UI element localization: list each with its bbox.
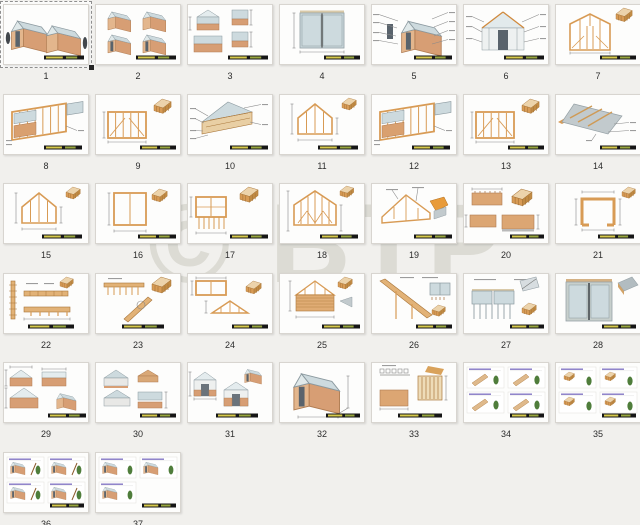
page-card xyxy=(279,94,365,155)
thumbnail-selection-frame xyxy=(368,270,460,337)
page-drawing xyxy=(556,185,640,242)
page-card xyxy=(371,183,457,244)
thumbnail-selection-frame xyxy=(92,91,184,158)
thumbnail-grid: 1 2 3 4 5 xyxy=(0,0,640,525)
thumbnail-selection-frame xyxy=(184,1,276,68)
page-drawing xyxy=(4,454,88,511)
page-number-label: 35 xyxy=(593,430,603,439)
page-number-label: 10 xyxy=(225,162,235,171)
page-card xyxy=(95,183,181,244)
page-number-label: 21 xyxy=(593,251,603,260)
thumbnail-selection-frame xyxy=(0,1,92,68)
page-card xyxy=(371,362,457,423)
page-number-label: 22 xyxy=(41,341,51,350)
page-drawing xyxy=(372,364,456,421)
page-number-label: 33 xyxy=(409,430,419,439)
page-drawing xyxy=(464,364,548,421)
page-card xyxy=(3,273,89,334)
thumbnail-selection-frame xyxy=(552,180,640,247)
thumbnail-selection-frame xyxy=(460,1,552,68)
page-card xyxy=(3,183,89,244)
thumbnail-selection-frame xyxy=(0,180,92,247)
page-thumbnail[interactable]: 25 xyxy=(276,269,368,359)
page-card xyxy=(555,362,640,423)
page-drawing xyxy=(96,185,180,242)
page-number-label: 11 xyxy=(317,162,326,171)
page-card xyxy=(555,273,640,334)
page-card xyxy=(371,273,457,334)
page-card xyxy=(95,273,181,334)
page-number-label: 16 xyxy=(133,251,143,260)
thumbnail-selection-frame xyxy=(184,270,276,337)
page-card xyxy=(279,362,365,423)
page-thumbnail[interactable]: 7 xyxy=(552,0,640,90)
page-drawing xyxy=(188,6,272,63)
page-number-label: 32 xyxy=(317,430,327,439)
page-number-label: 7 xyxy=(595,72,600,81)
page-card xyxy=(95,4,181,65)
page-thumbnail[interactable]: 29 xyxy=(0,358,92,448)
page-drawing xyxy=(464,6,548,63)
page-drawing xyxy=(280,275,364,332)
page-card xyxy=(3,4,89,65)
page-thumbnail[interactable]: 4 xyxy=(276,0,368,90)
page-number-label: 5 xyxy=(411,72,416,81)
page-number-label: 34 xyxy=(501,430,511,439)
page-number-label: 27 xyxy=(501,341,511,350)
thumbnail-selection-frame xyxy=(0,91,92,158)
page-card xyxy=(279,183,365,244)
thumbnail-selection-frame xyxy=(276,359,368,426)
page-number-label: 25 xyxy=(317,341,327,350)
page-number-label: 2 xyxy=(135,72,140,81)
page-drawing xyxy=(188,185,272,242)
thumbnail-selection-frame xyxy=(92,1,184,68)
page-number-label: 9 xyxy=(135,162,140,171)
page-card xyxy=(555,4,640,65)
page-drawing xyxy=(464,96,548,153)
page-thumbnail[interactable]: 32 xyxy=(276,358,368,448)
page-thumbnail[interactable]: 34 xyxy=(460,358,552,448)
thumbnail-selection-frame xyxy=(460,91,552,158)
page-card xyxy=(555,183,640,244)
page-drawing xyxy=(96,96,180,153)
thumbnail-selection-frame xyxy=(368,180,460,247)
page-drawing xyxy=(188,275,272,332)
page-card xyxy=(463,183,549,244)
page-thumbnail[interactable]: 19 xyxy=(368,179,460,269)
page-drawing xyxy=(280,6,364,63)
thumbnail-selection-frame xyxy=(92,449,184,516)
page-card xyxy=(3,452,89,513)
page-card xyxy=(279,4,365,65)
page-thumbnail[interactable]: 6 xyxy=(460,0,552,90)
page-drawing xyxy=(280,96,364,153)
page-thumbnail[interactable]: 31 xyxy=(184,358,276,448)
thumbnail-browser: © BTP 1 2 3 4 xyxy=(0,0,640,525)
page-drawing xyxy=(4,185,88,242)
page-drawing xyxy=(464,275,548,332)
thumbnail-selection-frame xyxy=(552,270,640,337)
page-card xyxy=(463,273,549,334)
page-card xyxy=(3,94,89,155)
page-number-label: 31 xyxy=(225,430,235,439)
thumbnail-selection-frame xyxy=(184,91,276,158)
page-number-label: 4 xyxy=(319,72,324,81)
page-number-label: 28 xyxy=(593,341,603,350)
page-drawing xyxy=(556,275,640,332)
page-thumbnail[interactable]: 16 xyxy=(92,179,184,269)
thumbnail-selection-frame xyxy=(184,180,276,247)
page-thumbnail[interactable]: 13 xyxy=(460,90,552,180)
page-card xyxy=(187,273,273,334)
page-thumbnail[interactable]: 26 xyxy=(368,269,460,359)
page-card xyxy=(371,94,457,155)
page-card xyxy=(95,94,181,155)
page-number-label: 29 xyxy=(41,430,51,439)
page-number-label: 1 xyxy=(43,72,48,81)
thumbnail-selection-frame xyxy=(276,180,368,247)
page-number-label: 12 xyxy=(409,162,419,171)
thumbnail-selection-frame xyxy=(0,270,92,337)
thumbnail-selection-frame xyxy=(368,1,460,68)
thumbnail-selection-frame xyxy=(460,270,552,337)
page-thumbnail[interactable]: 2 xyxy=(92,0,184,90)
page-number-label: 8 xyxy=(43,162,48,171)
page-thumbnail[interactable]: 9 xyxy=(92,90,184,180)
page-thumbnail[interactable]: 27 xyxy=(460,269,552,359)
page-drawing xyxy=(280,364,364,421)
page-number-label: 26 xyxy=(409,341,419,350)
thumbnail-selection-frame xyxy=(368,359,460,426)
page-thumbnail[interactable]: 8 xyxy=(0,90,92,180)
page-card xyxy=(187,94,273,155)
page-card xyxy=(463,362,549,423)
page-number-label: 13 xyxy=(501,162,511,171)
thumbnail-selection-frame xyxy=(552,359,640,426)
thumbnail-selection-frame xyxy=(92,180,184,247)
page-thumbnail[interactable]: 22 xyxy=(0,269,92,359)
page-card xyxy=(463,4,549,65)
page-drawing xyxy=(556,96,640,153)
page-drawing xyxy=(188,364,272,421)
page-card xyxy=(95,452,181,513)
page-drawing xyxy=(4,6,88,63)
page-drawing xyxy=(372,96,456,153)
page-card xyxy=(3,362,89,423)
page-drawing xyxy=(372,6,456,63)
page-drawing xyxy=(188,96,272,153)
page-number-label: 6 xyxy=(503,72,508,81)
thumbnail-selection-frame xyxy=(460,359,552,426)
page-thumbnail[interactable]: 30 xyxy=(92,358,184,448)
thumbnail-selection-frame xyxy=(0,359,92,426)
page-drawing xyxy=(556,6,640,63)
page-card xyxy=(187,4,273,65)
page-thumbnail[interactable]: 36 xyxy=(0,448,92,525)
page-thumbnail[interactable]: 10 xyxy=(184,90,276,180)
page-number-label: 15 xyxy=(41,251,51,260)
page-number-label: 19 xyxy=(409,251,419,260)
thumbnail-selection-frame xyxy=(460,180,552,247)
page-thumbnail[interactable]: 33 xyxy=(368,358,460,448)
page-drawing xyxy=(96,454,180,511)
thumbnail-selection-frame xyxy=(552,91,640,158)
thumbnail-selection-frame xyxy=(368,91,460,158)
page-thumbnail[interactable]: 14 xyxy=(552,90,640,180)
page-drawing xyxy=(280,185,364,242)
page-thumbnail[interactable]: 1 xyxy=(0,0,92,90)
page-thumbnail[interactable]: 24 xyxy=(184,269,276,359)
page-drawing xyxy=(4,96,88,153)
thumbnail-selection-frame xyxy=(276,270,368,337)
page-thumbnail[interactable]: 18 xyxy=(276,179,368,269)
page-card xyxy=(463,94,549,155)
page-drawing xyxy=(96,275,180,332)
page-number-label: 30 xyxy=(133,430,143,439)
page-drawing xyxy=(372,275,456,332)
page-drawing xyxy=(4,364,88,421)
page-thumbnail[interactable]: 5 xyxy=(368,0,460,90)
page-number-label: 20 xyxy=(501,251,511,260)
page-drawing xyxy=(372,185,456,242)
page-card xyxy=(371,4,457,65)
page-thumbnail[interactable]: 3 xyxy=(184,0,276,90)
thumbnail-selection-frame xyxy=(184,359,276,426)
thumbnail-selection-frame xyxy=(276,1,368,68)
page-drawing xyxy=(96,364,180,421)
page-card xyxy=(187,183,273,244)
page-number-label: 3 xyxy=(227,72,232,81)
page-number-label: 24 xyxy=(225,341,235,350)
thumbnail-selection-frame xyxy=(0,449,92,516)
page-thumbnail[interactable]: 35 xyxy=(552,358,640,448)
thumbnail-selection-frame xyxy=(92,359,184,426)
page-number-label: 36 xyxy=(41,520,51,525)
page-card xyxy=(187,362,273,423)
page-number-label: 23 xyxy=(133,341,143,350)
page-number-label: 14 xyxy=(593,162,603,171)
page-thumbnail[interactable]: 37 xyxy=(92,448,184,525)
page-thumbnail[interactable]: 21 xyxy=(552,179,640,269)
page-number-label: 18 xyxy=(317,251,327,260)
thumbnail-selection-frame xyxy=(552,1,640,68)
page-drawing xyxy=(4,275,88,332)
page-thumbnail[interactable]: 23 xyxy=(92,269,184,359)
page-thumbnail[interactable]: 20 xyxy=(460,179,552,269)
page-card xyxy=(555,94,640,155)
page-thumbnail[interactable]: 17 xyxy=(184,179,276,269)
page-card xyxy=(279,273,365,334)
page-number-label: 17 xyxy=(225,251,235,260)
thumbnail-selection-frame xyxy=(276,91,368,158)
thumbnail-selection-frame xyxy=(92,270,184,337)
page-thumbnail[interactable]: 11 xyxy=(276,90,368,180)
page-thumbnail[interactable]: 15 xyxy=(0,179,92,269)
page-drawing xyxy=(556,364,640,421)
page-drawing xyxy=(464,185,548,242)
page-drawing xyxy=(96,6,180,63)
page-card xyxy=(95,362,181,423)
page-thumbnail[interactable]: 28 xyxy=(552,269,640,359)
page-number-label: 37 xyxy=(133,520,143,525)
page-thumbnail[interactable]: 12 xyxy=(368,90,460,180)
